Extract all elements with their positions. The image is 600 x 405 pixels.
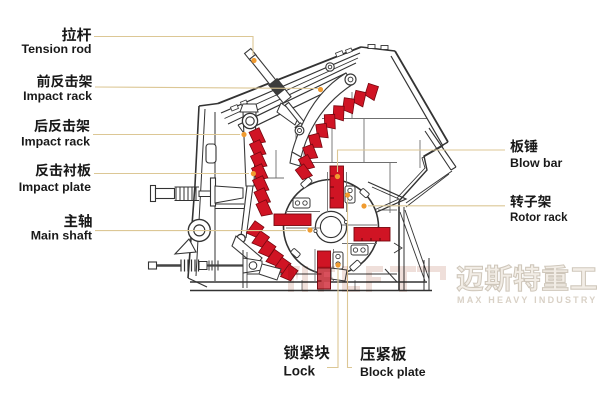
svg-text:Block plate: Block plate (360, 365, 426, 379)
svg-text:Rotor rack: Rotor rack (510, 212, 568, 224)
svg-text:Impact rack: Impact rack (23, 89, 92, 103)
svg-text:Blow bar: Blow bar (510, 156, 562, 170)
svg-text:Lock: Lock (284, 364, 316, 379)
svg-text:MAX HEAVY INDUSTRY: MAX HEAVY INDUSTRY (457, 295, 597, 305)
svg-text:Tension rod: Tension rod (22, 42, 92, 56)
svg-text:Impact plate: Impact plate (19, 180, 91, 194)
svg-text:Impact rack: Impact rack (21, 135, 90, 149)
svg-text:Main shaft: Main shaft (31, 229, 92, 243)
